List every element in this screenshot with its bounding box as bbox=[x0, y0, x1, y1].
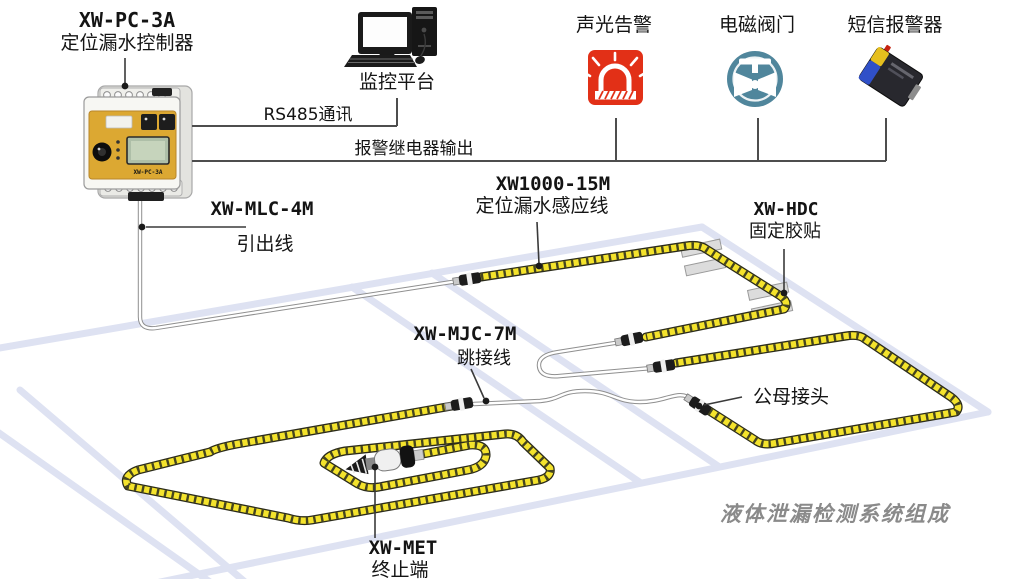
floor-line-left2 bbox=[0, 428, 210, 579]
sound-light-alarm-icon bbox=[583, 50, 647, 105]
sensing-cable-3-spiral bbox=[126, 406, 550, 521]
connector-a bbox=[614, 330, 644, 349]
output-sms-label: 短信报警器 bbox=[847, 14, 942, 36]
relay-label: 报警继电器输出 bbox=[355, 139, 474, 159]
sensing-name-label: 定位漏水感应线 bbox=[475, 195, 608, 217]
controller-print: XW-PC-3A bbox=[134, 169, 163, 176]
connector-name-label: 公母接头 bbox=[753, 386, 829, 408]
jumper-name-label: 跳接线 bbox=[457, 348, 511, 369]
controller-device: XW-PC-3A bbox=[84, 86, 192, 201]
terminator-name-label: 终止端 bbox=[371, 559, 428, 579]
output-valve-label: 电磁阀门 bbox=[719, 14, 795, 36]
tape-model-label: XW-HDC bbox=[753, 199, 818, 220]
diagram-title: 液体泄漏检测系统组成 bbox=[720, 501, 951, 526]
leak-detection-diagram: XW-PC-3A bbox=[0, 0, 1024, 579]
tape-name-label: 固定胶贴 bbox=[749, 221, 821, 242]
lead-model-label: XW-MLC-4M bbox=[211, 198, 314, 220]
label-pointers bbox=[122, 58, 788, 538]
lead-name-label: 引出线 bbox=[236, 233, 293, 255]
controller-model-label: XW-PC-3A bbox=[79, 8, 175, 32]
connector-b bbox=[646, 358, 676, 375]
terminator-model-label: XW-MET bbox=[369, 537, 438, 559]
sensing-model-label: XW1000-15M bbox=[496, 173, 610, 195]
jumper-model-label: XW-MJC-7M bbox=[414, 323, 517, 345]
output-alarm-label: 声光告警 bbox=[576, 14, 652, 36]
solenoid-valve-icon bbox=[727, 51, 783, 107]
monitor-computer-icon bbox=[344, 7, 437, 67]
monitor-label: 监控平台 bbox=[359, 71, 435, 93]
rs485-label: RS485通讯 bbox=[263, 105, 352, 125]
controller-name-label: 定位漏水控制器 bbox=[60, 32, 193, 54]
sms-alarm-icon bbox=[858, 41, 931, 109]
